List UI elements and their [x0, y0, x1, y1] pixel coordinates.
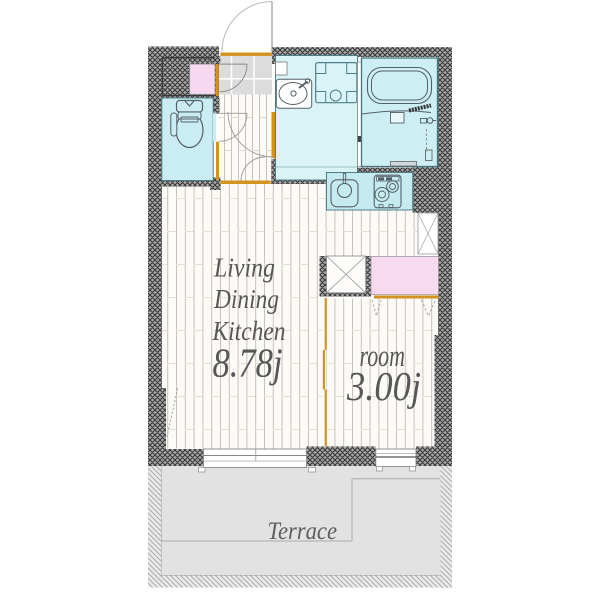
- svg-text:8.78j: 8.78j: [213, 340, 283, 386]
- svg-text:Living: Living: [213, 253, 275, 283]
- svg-text:Terrace: Terrace: [268, 518, 338, 545]
- svg-text:Dining: Dining: [213, 284, 279, 314]
- svg-text:3.00j: 3.00j: [346, 363, 421, 409]
